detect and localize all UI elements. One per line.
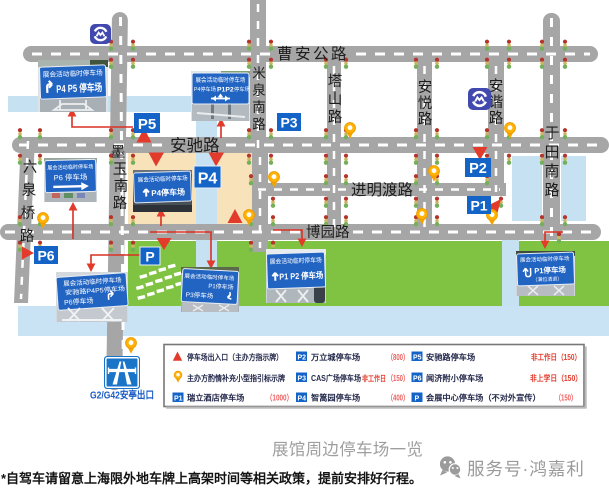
svg-text:P2: P2 [469,161,487,177]
svg-text:主办方酌情补充小型指引标示牌: 主办方酌情补充小型指引标示牌 [187,373,285,383]
svg-text:（400）: （400） [387,393,409,403]
svg-text:P3: P3 [298,375,307,382]
svg-text:服务号·鸿嘉利: 服务号·鸿嘉利 [467,459,585,479]
svg-text:P1P2: P1P2 [217,87,234,94]
svg-text:智篙园停车场: 智篙园停车场 [310,393,360,403]
svg-text:P2: P2 [298,354,307,361]
svg-text:P4停车场: P4停车场 [194,85,216,93]
svg-text:P4停车场: P4停车场 [151,187,185,198]
svg-text:P1 P2 停车场: P1 P2 停车场 [279,270,324,282]
svg-text:（150）: （150） [555,393,577,403]
svg-text:博园路: 博园路 [306,224,350,241]
svg-text:安驰路: 安驰路 [170,136,220,155]
svg-text:曹安公路: 曹安公路 [277,45,349,63]
svg-text:P1: P1 [470,198,487,214]
svg-text:塔山路: 塔山路 [328,73,343,126]
svg-text:CAS广场停车场: CAS广场停车场 [311,373,361,383]
svg-text:P6 停车场: P6 停车场 [54,172,89,183]
svg-text:安驰路停车场: 安驰路停车场 [426,352,475,362]
svg-text:P4 P5 停车场: P4 P5 停车场 [56,81,103,96]
svg-text:P: P [145,249,154,265]
svg-text:（满位清退）: （满位清退） [532,275,562,283]
svg-text:停车场: 停车场 [234,85,250,93]
svg-text:P1停车场: P1停车场 [534,264,567,275]
svg-text:展会活动临时停车场: 展会活动临时停车场 [196,76,246,84]
svg-text:P6: P6 [37,248,54,264]
svg-text:P1: P1 [174,395,183,402]
svg-text:非上学日（150）: 非上学日（150） [530,373,582,383]
svg-text:会展中心停车场（不对外宣传）: 会展中心停车场（不对外宣传） [426,393,541,403]
svg-text:非工作日: 非工作日 [362,373,386,383]
svg-text:P3: P3 [280,115,297,131]
svg-text:（150）: （150） [387,373,409,383]
svg-text:P4: P4 [198,171,218,188]
svg-text:*自驾车请留意上海限外地车牌上高架时间等相关政策，提前安排好: *自驾车请留意上海限外地车牌上高架时间等相关政策，提前安排好行程。 [1,471,422,486]
svg-text:安悦路: 安悦路 [418,79,433,128]
svg-text:万立城停车场: 万立城停车场 [310,352,360,362]
svg-text:P: P [415,395,420,402]
svg-text:P5: P5 [413,354,422,361]
svg-text:G2/G42安亭出口: G2/G42安亭出口 [90,389,154,402]
svg-text:展馆周边停车场一览: 展馆周边停车场一览 [272,440,423,459]
svg-text:P5: P5 [138,116,156,133]
svg-text:P6: P6 [413,375,422,382]
svg-text:瑞立酒店停车场: 瑞立酒店停车场 [187,393,244,403]
svg-text:（1000）: （1000） [266,393,293,403]
svg-text:停车场出入口（主办方指示牌）: 停车场出入口（主办方指示牌） [187,352,283,362]
svg-text:（800）: （800） [387,352,409,362]
svg-text:P4: P4 [298,395,307,402]
svg-text:非工作日（150）: 非工作日（150） [531,352,581,362]
svg-text:进明渡路: 进明渡路 [351,181,414,199]
svg-text:闻济附小停车场: 闻济附小停车场 [426,373,483,383]
